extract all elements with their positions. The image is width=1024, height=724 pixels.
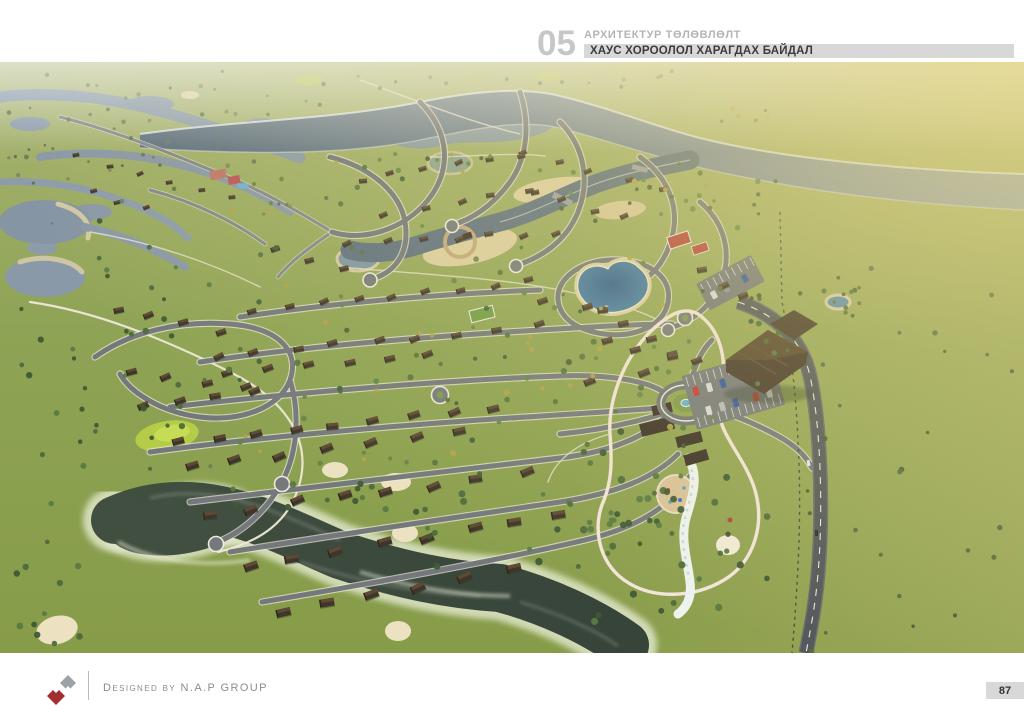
- album-page: 05 АРХИТЕКТУР ТӨЛӨВЛӨЛТ ХАУС ХОРООЛОЛ ХА…: [0, 0, 1024, 724]
- atmosphere-haze: [0, 62, 1024, 653]
- logo-red-diamond: [47, 690, 65, 705]
- nap-group-logo: [42, 670, 82, 712]
- page-title: ХАУС ХОРООЛОЛ ХАРАГДАХ БАЙДАЛ: [584, 44, 1014, 58]
- section-label: АРХИТЕКТУР ТӨЛӨВЛӨЛТ: [584, 29, 1014, 41]
- logo-gray-diamond: [60, 675, 76, 689]
- section-number: 05: [537, 26, 576, 60]
- page-number-badge: 87: [986, 682, 1024, 699]
- header-titles: АРХИТЕКТУР ТӨЛӨВЛӨЛТ ХАУС ХОРООЛОЛ ХАРАГ…: [584, 26, 1014, 58]
- designer-credit: Designed by N.A.P GROUP: [103, 682, 268, 694]
- masterplan-scene: [0, 62, 1024, 653]
- masterplan-render: [0, 62, 1024, 653]
- page-header: 05 АРХИТЕКТУР ТӨЛӨВЛӨЛТ ХАУС ХОРООЛОЛ ХА…: [537, 26, 1014, 60]
- footer-divider: [88, 671, 89, 700]
